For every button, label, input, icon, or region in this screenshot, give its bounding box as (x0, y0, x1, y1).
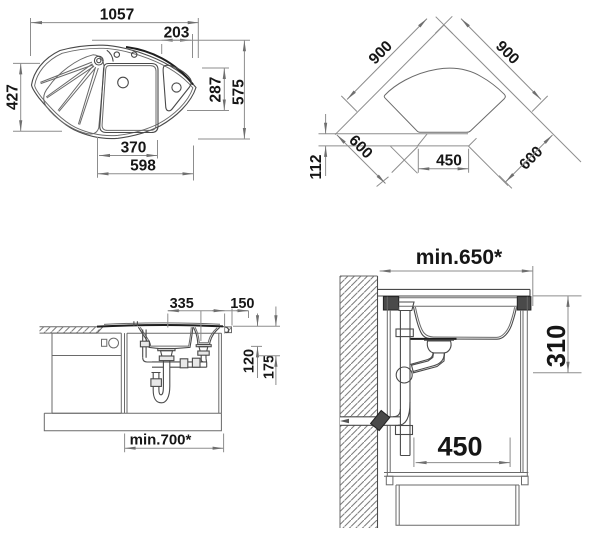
svg-text:598: 598 (130, 158, 156, 175)
svg-text:335: 335 (170, 296, 194, 312)
svg-text:310: 310 (543, 325, 571, 368)
svg-text:112: 112 (308, 154, 325, 179)
svg-text:203: 203 (164, 25, 190, 42)
svg-text:175: 175 (262, 355, 278, 379)
svg-text:287: 287 (208, 77, 225, 103)
svg-text:120: 120 (242, 349, 258, 373)
svg-text:450: 450 (436, 153, 462, 170)
svg-text:427: 427 (5, 84, 22, 110)
svg-text:min.650*: min.650* (416, 246, 503, 269)
svg-text:min.700*: min.700* (130, 432, 192, 449)
svg-text:370: 370 (121, 139, 147, 156)
svg-text:150: 150 (230, 296, 254, 312)
svg-text:450: 450 (437, 432, 482, 462)
svg-text:1057: 1057 (100, 7, 134, 24)
